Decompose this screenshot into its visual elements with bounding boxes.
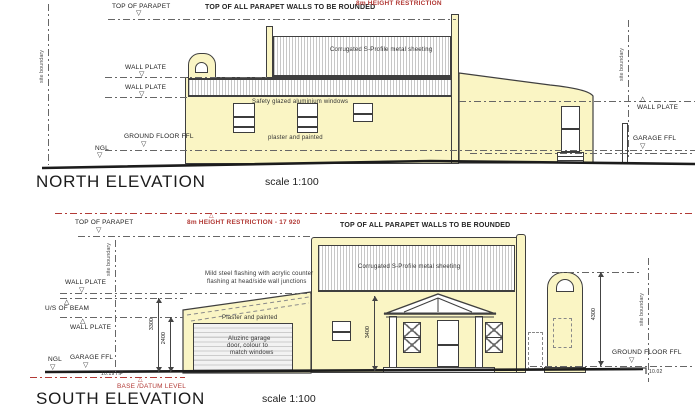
south-wall-plate-line-2 — [60, 317, 183, 318]
south-site-boundary-left-line — [115, 240, 116, 375]
north-height-restriction-note: 8m HEIGHT RESTRICTION — [356, 1, 442, 8]
north-wall-plate-label-1: WALL PLATE — [125, 65, 166, 72]
north-garage-ffl-line — [470, 153, 695, 154]
south-garage-door-note-line3: match windows — [230, 350, 274, 356]
south-porch-gable — [384, 294, 496, 314]
south-garage-door-note-line2: door, colour to — [227, 343, 268, 349]
south-flashing-note-line2: flashing at head/side wall junctions — [207, 279, 307, 285]
south-right-level-value: 10.02 — [649, 370, 663, 375]
south-dim-2400-line — [170, 317, 171, 372]
south-dim-2400-label: 2400 — [162, 332, 168, 344]
south-garage-ffl-label: GARAGE FFL — [70, 355, 113, 362]
south-dim-3300-line — [158, 298, 159, 372]
north-wall-plate-line-1 — [105, 77, 268, 78]
south-site-boundary-right-line — [648, 258, 649, 382]
north-elevation-title: NORTH ELEVATION — [36, 172, 206, 192]
drawing-sheet: TOP OF PARAPET ▽ TOP OF ALL PARAPET WALL… — [0, 0, 700, 413]
south-dim-3400-line — [374, 296, 375, 371]
north-top-of-parapet-line — [108, 19, 456, 20]
south-top-of-parapet-label: TOP OF PARAPET — [75, 220, 133, 227]
south-dim-3400-label: 3400 — [366, 326, 372, 338]
north-site-boundary-left-label: site boundary — [40, 50, 46, 83]
south-us-of-beam-label: U/S OF BEAM — [45, 306, 89, 313]
north-clerestory-note: Safety glazed aluminium windows — [252, 99, 348, 105]
south-garage-door-note-line1: Aluzinc garage — [228, 336, 271, 342]
south-base-datum-line — [30, 377, 185, 378]
south-wall-plate-label-2: WALL PLATE — [70, 325, 111, 332]
level-marker-icon: ▽ — [141, 141, 146, 148]
north-roof-material-note: Corrugated S-Profile metal sheeting — [330, 47, 432, 53]
north-ground-line — [42, 161, 695, 168]
level-marker-icon: △ — [640, 96, 645, 103]
south-scale-note: scale 1:100 — [262, 393, 316, 405]
north-scale-note: scale 1:100 — [265, 176, 319, 188]
north-wall-plate-line-2 — [105, 97, 189, 98]
south-wall-plate-line-1 — [60, 293, 311, 294]
level-marker-icon: ▽ — [139, 91, 144, 98]
north-wall-plate-label-2: WALL PLATE — [125, 85, 166, 92]
south-flashing-note-line1: Mild steel flashing with acrylic counter — [205, 271, 313, 277]
south-height-restriction-line — [55, 213, 695, 214]
level-marker-icon: ▽ — [97, 152, 102, 159]
level-marker-icon: ▽ — [50, 364, 55, 371]
north-parapet-note: TOP OF ALL PARAPET WALLS TO BE ROUNDED — [205, 4, 375, 11]
level-marker-icon: ▽ — [629, 357, 634, 364]
south-ngl-label: NGL — [48, 357, 62, 364]
level-marker-icon: ▽ — [136, 10, 141, 17]
level-marker-icon: ▽ — [640, 143, 645, 150]
north-site-boundary-right-label: site boundary — [620, 48, 626, 81]
south-site-boundary-right-label: site boundary — [640, 293, 646, 326]
north-wall-plate-right-label: WALL PLATE — [637, 105, 678, 112]
south-site-boundary-left-label: site boundary — [107, 243, 113, 276]
north-ground-floor-ffl-label: GROUND FLOOR FFL — [124, 134, 194, 141]
north-site-boundary-right-line — [628, 20, 629, 157]
south-dim-4300-line — [600, 272, 601, 366]
south-wall-plate-label-1: WALL PLATE — [65, 280, 106, 287]
south-dim-4300-label: 4300 — [592, 308, 598, 320]
south-ground-floor-ffl-line — [530, 366, 695, 367]
south-ground-floor-ffl-label: GROUND FLOOR FFL — [612, 350, 682, 357]
level-marker-icon: ▽ — [83, 362, 88, 369]
south-wall-finish-note: Plaster and painted — [222, 315, 278, 321]
north-site-boundary-left-line — [48, 4, 49, 165]
south-hp-level-value: 10.19 HP — [101, 372, 123, 377]
north-wall-plate-right-line — [459, 101, 695, 102]
south-us-of-beam-line — [60, 298, 183, 299]
level-marker-icon: ▽ — [79, 287, 84, 294]
north-wall-finish-note: plaster and painted — [268, 135, 323, 141]
north-ground-floor-ffl-line — [105, 150, 695, 151]
south-elevation-title: SOUTH ELEVATION — [36, 389, 205, 409]
south-height-restriction-note: 8m HEIGHT RESTRICTION - 17 920 — [187, 220, 300, 227]
south-parapet-note: TOP OF ALL PARAPET WALLS TO BE ROUNDED — [340, 222, 510, 229]
level-marker-icon: ▽ — [96, 227, 101, 234]
south-ground-line — [45, 369, 643, 372]
south-dim-3300-label: 3300 — [150, 318, 156, 330]
linework-layer — [0, 0, 700, 413]
south-roof-material-note: Corrugated S-Profile metal sheeting — [358, 264, 460, 270]
north-garage-ffl-label: GARAGE FFL — [633, 136, 676, 143]
south-top-of-parapet-line — [78, 236, 312, 237]
level-marker-icon: ▽ — [139, 71, 144, 78]
